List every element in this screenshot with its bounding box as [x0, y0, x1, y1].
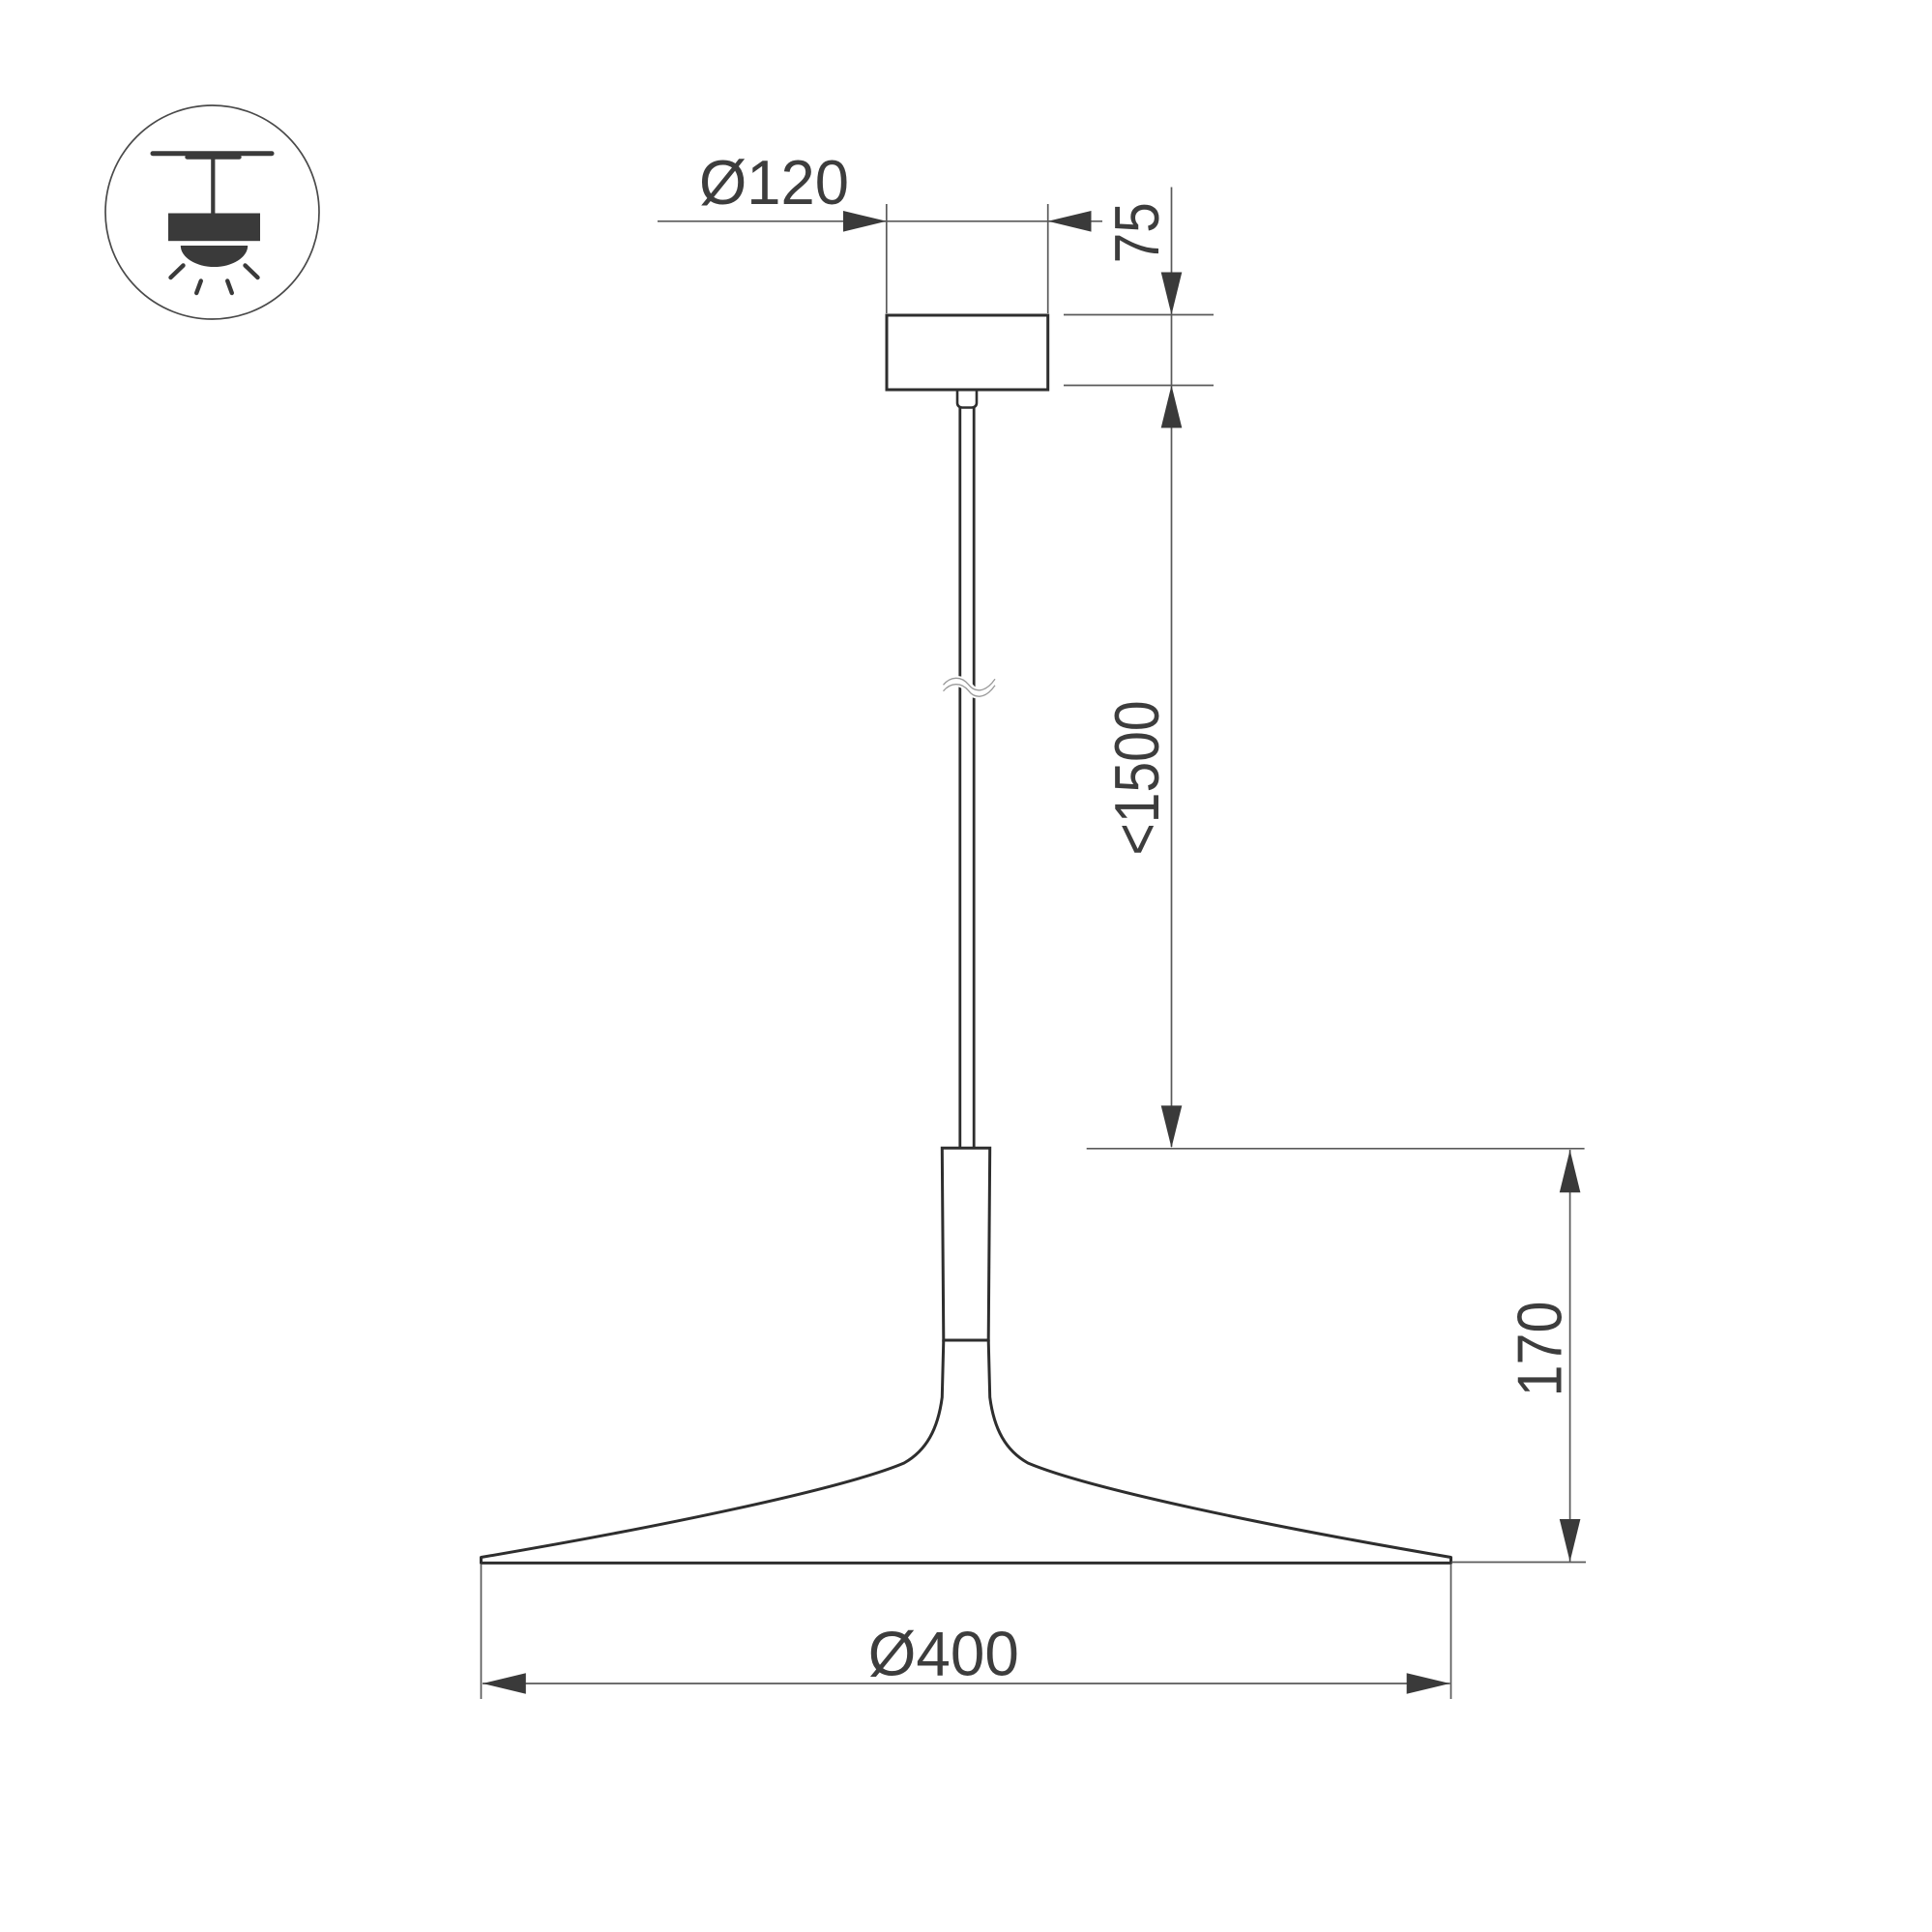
- svg-text:Ø400: Ø400: [868, 1619, 1019, 1689]
- svg-text:<1500: <1500: [1101, 701, 1172, 856]
- svg-text:170: 170: [1505, 1302, 1575, 1397]
- svg-text:Ø120: Ø120: [699, 147, 849, 218]
- svg-text:75: 75: [1101, 202, 1172, 263]
